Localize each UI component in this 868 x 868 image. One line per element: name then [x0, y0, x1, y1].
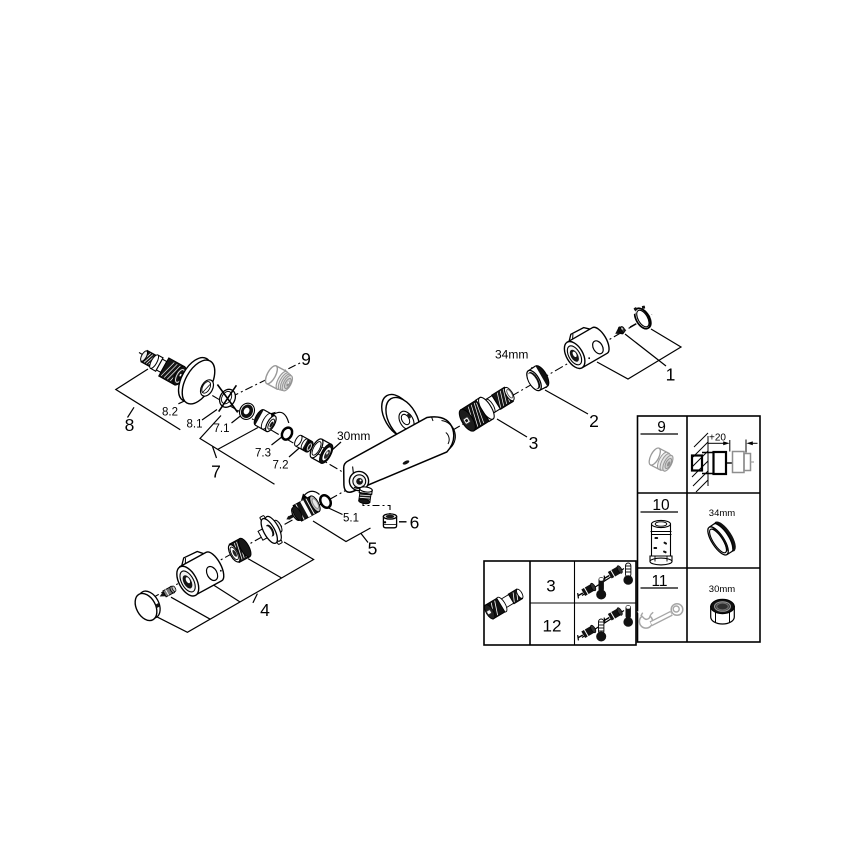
svg-text:1: 1 — [666, 364, 676, 384]
svg-text:30mm: 30mm — [337, 429, 370, 443]
svg-text:5: 5 — [368, 539, 378, 559]
svg-text:8: 8 — [125, 415, 135, 435]
svg-text:6: 6 — [410, 513, 420, 533]
svg-text:8.2: 8.2 — [162, 407, 178, 419]
svg-text:9: 9 — [657, 419, 666, 436]
svg-text:12: 12 — [543, 617, 562, 636]
svg-text:34mm: 34mm — [709, 508, 735, 519]
svg-text:34mm: 34mm — [495, 348, 528, 362]
svg-text:7.1: 7.1 — [214, 423, 230, 435]
svg-text:11: 11 — [651, 573, 667, 590]
svg-text:30mm: 30mm — [709, 584, 735, 595]
svg-text:7.3: 7.3 — [255, 448, 271, 460]
svg-text:3: 3 — [546, 577, 555, 596]
svg-text:7: 7 — [211, 462, 221, 482]
svg-text:9: 9 — [301, 349, 311, 369]
svg-text:3: 3 — [529, 433, 539, 453]
svg-text:2: 2 — [589, 411, 599, 431]
svg-text:8.1: 8.1 — [187, 419, 203, 431]
svg-text:4: 4 — [260, 600, 270, 620]
svg-text:7.2: 7.2 — [273, 460, 289, 472]
svg-text:5.1: 5.1 — [343, 513, 359, 525]
